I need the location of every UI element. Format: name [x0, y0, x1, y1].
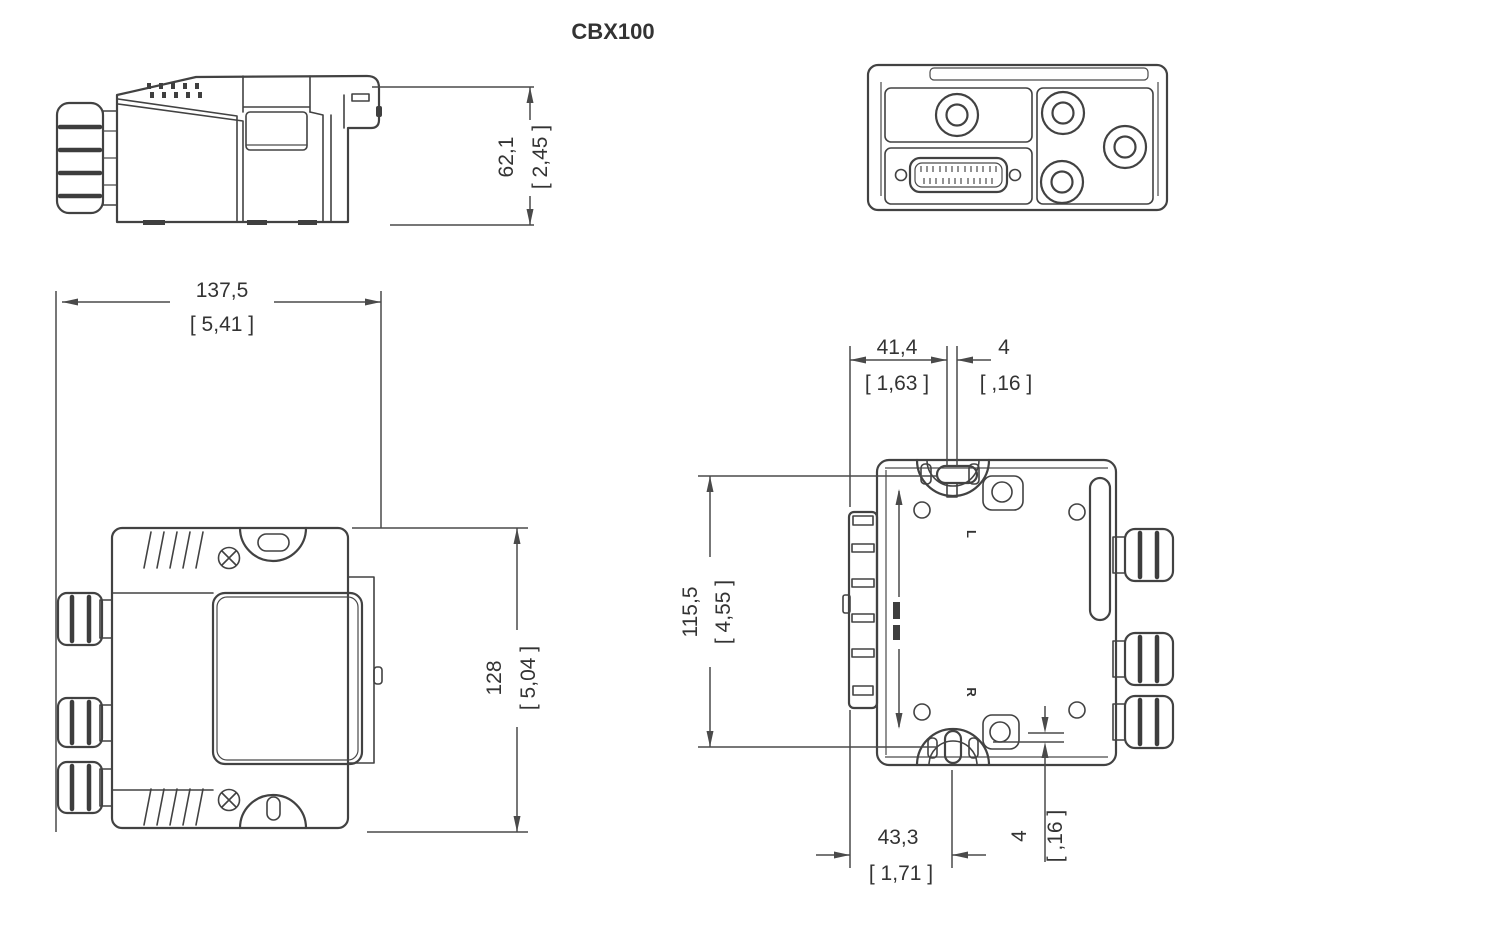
side-hump: [243, 76, 310, 150]
rear-right-slot: [1090, 478, 1110, 620]
front-door: [213, 593, 362, 764]
bottom-top-recess: [930, 68, 1148, 80]
front-right-latch: [374, 667, 382, 684]
side-back-wall: [310, 95, 344, 222]
rear-label-left: L: [964, 530, 979, 538]
front-view: [58, 528, 382, 828]
rear-corner-holes: [914, 502, 1085, 720]
dim-front-width-mm: 137,5: [196, 279, 249, 302]
dim-rear-top-gap-inch: [ ,16 ]: [980, 372, 1033, 395]
front-screw-top-icon: [219, 548, 240, 569]
dsub-connector-icon: [896, 158, 1021, 192]
dim-front-width-inch: [ 5,41 ]: [190, 313, 254, 336]
side-view: [57, 76, 382, 225]
dim-front-height: 128 [ 5,04 ]: [352, 528, 540, 832]
dim-rear-top-gap-mm: 4: [998, 336, 1010, 359]
rear-gland-3-icon: [1113, 696, 1173, 748]
dim-rear-bottom-offset-inch: [ 1,71 ]: [869, 862, 933, 885]
front-gland-2-icon: [58, 698, 112, 747]
rear-gland-1-icon: [1113, 529, 1173, 581]
dim-side-height-inch: [ 2,45 ]: [529, 125, 552, 189]
dim-front-height-inch: [ 5,04 ]: [517, 646, 540, 710]
side-latch-nub: [376, 106, 382, 117]
dim-side-height-mm: 62,1: [495, 137, 518, 178]
rear-view: L R: [843, 460, 1173, 765]
dim-rear-bottom-gap-mm: 4: [1008, 830, 1031, 842]
rear-internal-dim: [893, 489, 903, 729]
front-vents-bottom: [144, 789, 203, 825]
front-screw-bottom-icon: [219, 790, 240, 811]
dim-rear-hole-spacing-mm: 115,5: [679, 587, 702, 638]
dim-rear-bottom-gap-inch: [ ,16 ]: [1044, 810, 1067, 863]
dim-rear-top-offset-mm: 41,4: [877, 336, 918, 359]
front-gland-1-icon: [58, 593, 112, 645]
drawing-page: CBX100: [0, 0, 1500, 938]
dim-rear-top-gap: 4 [ ,16 ]: [957, 336, 1032, 395]
technical-drawing: CBX100: [0, 0, 1500, 938]
front-vents-top: [144, 532, 203, 568]
dim-rear-bottom-offset-mm: 43,3: [878, 826, 919, 849]
dim-rear-bottom-gap: 4 [ ,16 ]: [993, 706, 1067, 862]
front-lock-top: [240, 528, 306, 561]
dim-front-height-mm: 128: [483, 660, 506, 695]
front-gland-3-icon: [58, 762, 112, 813]
front-lock-bottom: [240, 795, 306, 828]
din-rail-clip: [843, 512, 877, 708]
side-hinge-hook: [352, 94, 369, 101]
dim-rear-hole-spacing-inch: [ 4,55 ]: [712, 580, 735, 644]
dim-side-height: 62,1 [ 2,45 ]: [372, 87, 552, 225]
front-body: [112, 528, 348, 828]
rear-label-right: R: [964, 687, 979, 697]
drawing-title: CBX100: [571, 19, 654, 44]
side-cable-gland-icon: [57, 103, 117, 213]
bottom-view: [868, 65, 1167, 210]
rear-gland-2-icon: [1113, 633, 1173, 685]
side-lid-seam: [118, 99, 243, 222]
rear-body: [877, 460, 1116, 765]
dim-rear-top-offset-inch: [ 1,63 ]: [865, 372, 929, 395]
bottom-panel-gland: [885, 88, 1032, 142]
